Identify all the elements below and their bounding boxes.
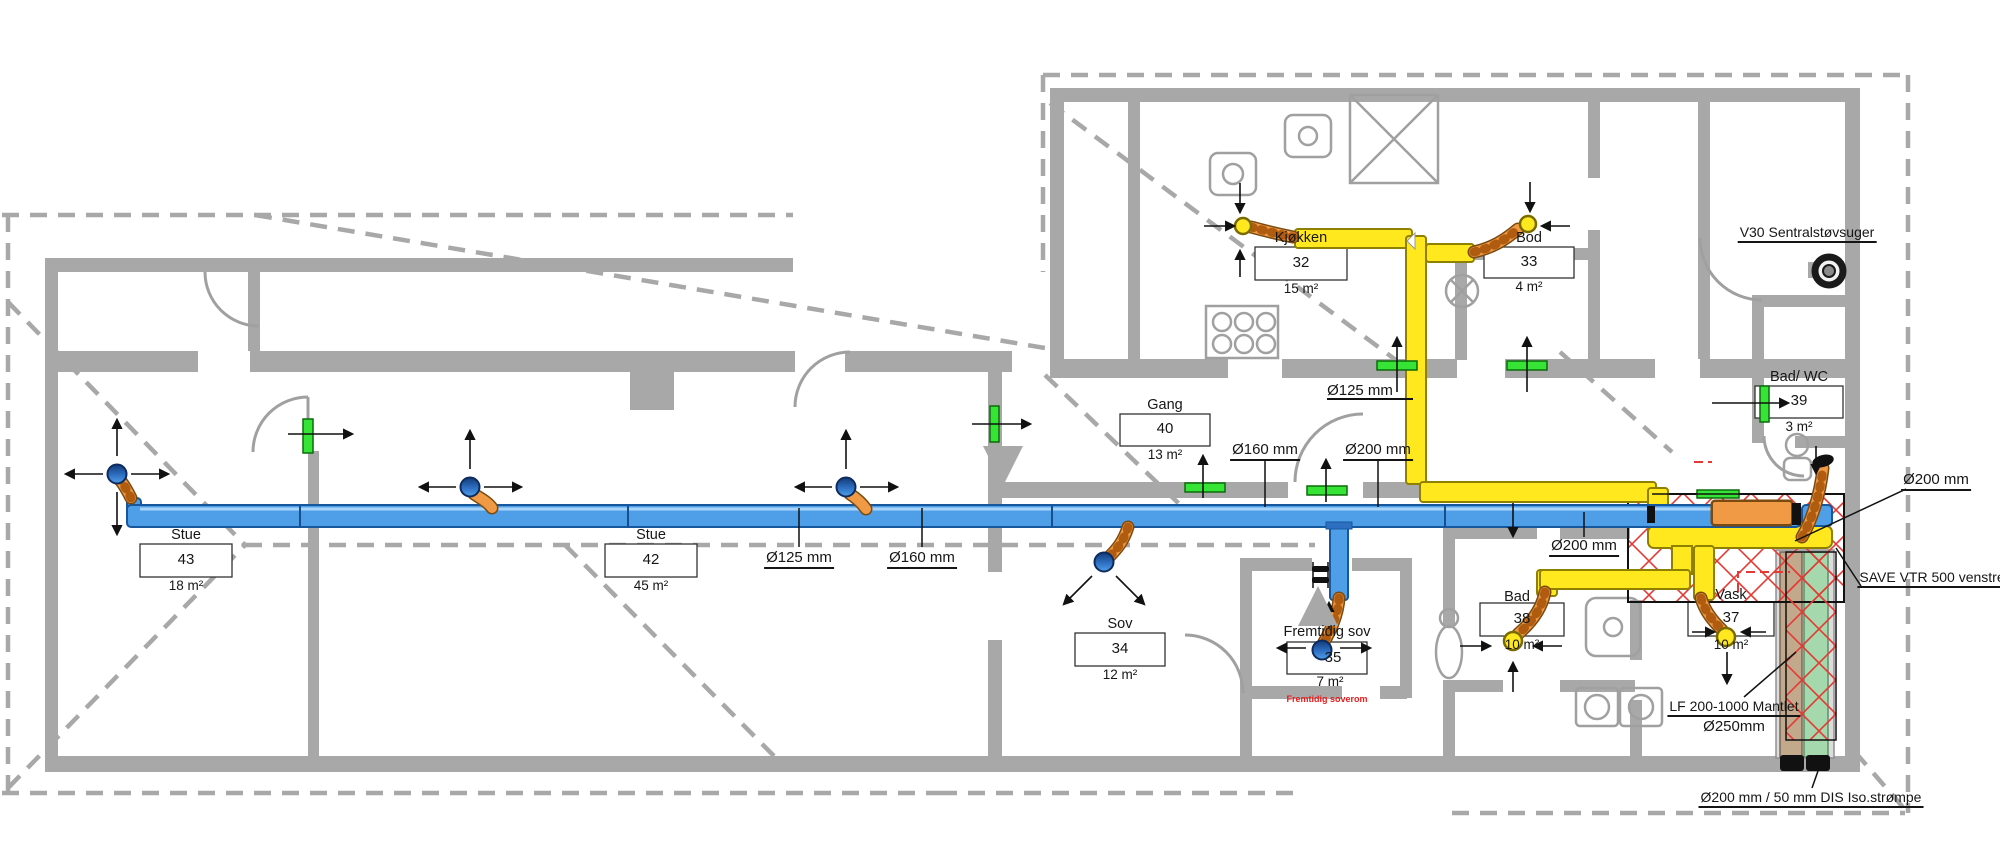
room-label-badwc-39: Bad/ WC [1770, 369, 1828, 386]
room-number-sov-34: 34 [1112, 640, 1129, 657]
room-area-fremtidig-sov-35: 7 m² [1317, 674, 1344, 690]
duct-dim-kitchen-125: Ø125 mm [1327, 382, 1393, 399]
duct-dim-supply-125: Ø125 mm [764, 549, 834, 569]
roof-dashed-lines [2, 75, 1908, 813]
room-area-stue-43: 18 m² [169, 578, 204, 594]
room-area-stue-42: 45 m² [634, 578, 669, 594]
silencer-label-line2: Ø250mm [1703, 718, 1765, 735]
room-area-badwc-39: 3 m² [1786, 419, 1813, 435]
room-label-stue-43: Stue [171, 527, 201, 544]
room-number-stue-43: 43 [178, 551, 195, 568]
duct-dim-gang-160: Ø160 mm [1230, 441, 1300, 461]
roof-cowl-cap [1811, 452, 1835, 469]
pipe-end-cap [1806, 755, 1830, 771]
room-label-stue-42: Stue [636, 527, 666, 544]
room-area-bad-38: 10 m² [1505, 637, 1540, 653]
room-area-vask-37: 10 m² [1714, 637, 1749, 653]
room-number-gang-40: 40 [1157, 420, 1174, 437]
room-number-bod-33: 33 [1521, 253, 1538, 270]
central-vacuum-label: V30 Sentralstøvsuger [1738, 224, 1877, 243]
room-area-gang-40: 13 m² [1148, 447, 1183, 463]
room-number-vask-37: 37 [1723, 609, 1740, 626]
pipe-end-cap [1780, 755, 1804, 771]
walls [45, 88, 1860, 772]
central-vacuum-unit-icon [1808, 257, 1843, 285]
room-area-sov-34: 12 m² [1103, 667, 1138, 683]
duct-dim-gang-200: Ø200 mm [1343, 441, 1413, 461]
wall-valves-green [303, 361, 1769, 498]
ventilation-plan: Stue 43 18 m² Stue 42 45 m² Gang 40 13 m… [0, 0, 2000, 856]
room-area-bod-33: 4 m² [1516, 279, 1543, 295]
room-label-vask-37: Vask [1715, 587, 1746, 604]
room-label-kjokken-32: Kjøkken [1275, 230, 1327, 247]
duct-dim-supply-160: Ø160 mm [887, 549, 957, 569]
room-label-sov-34: Sov [1108, 616, 1133, 633]
room-number-badwc-39: 39 [1791, 392, 1808, 409]
floor-plan-drawing [0, 0, 2000, 856]
ahu-label: SAVE VTR 500 venstre [1857, 569, 2000, 588]
future-bedroom-note: Fremtidig soverom [1286, 694, 1367, 704]
room-number-stue-42: 42 [643, 551, 660, 568]
room-number-bad-38: 38 [1514, 610, 1531, 627]
duct-dim-main-200: Ø200 mm [1549, 537, 1619, 557]
room-number-fremtidig-sov-35: 35 [1325, 649, 1342, 666]
room-label-bod-33: Bod [1516, 230, 1542, 247]
silencer-label-line1: LF 200-1000 Mantlet [1667, 698, 1800, 717]
room-area-kjokken-32: 15 m² [1284, 281, 1319, 297]
gray-airflow-arrows [1003, 446, 1318, 624]
duct-dim-outdoor-200: Ø200 mm [1901, 471, 1971, 491]
room-label-fremtidig-sov-35: Fremtidig sov [1283, 624, 1370, 641]
room-number-kjokken-32: 32 [1293, 254, 1310, 271]
room-label-gang-40: Gang [1147, 397, 1182, 414]
room-label-bad-38: Bad [1504, 589, 1530, 606]
riser-label: Ø200 mm / 50 mm DIS Iso.strømpe [1699, 789, 1924, 808]
